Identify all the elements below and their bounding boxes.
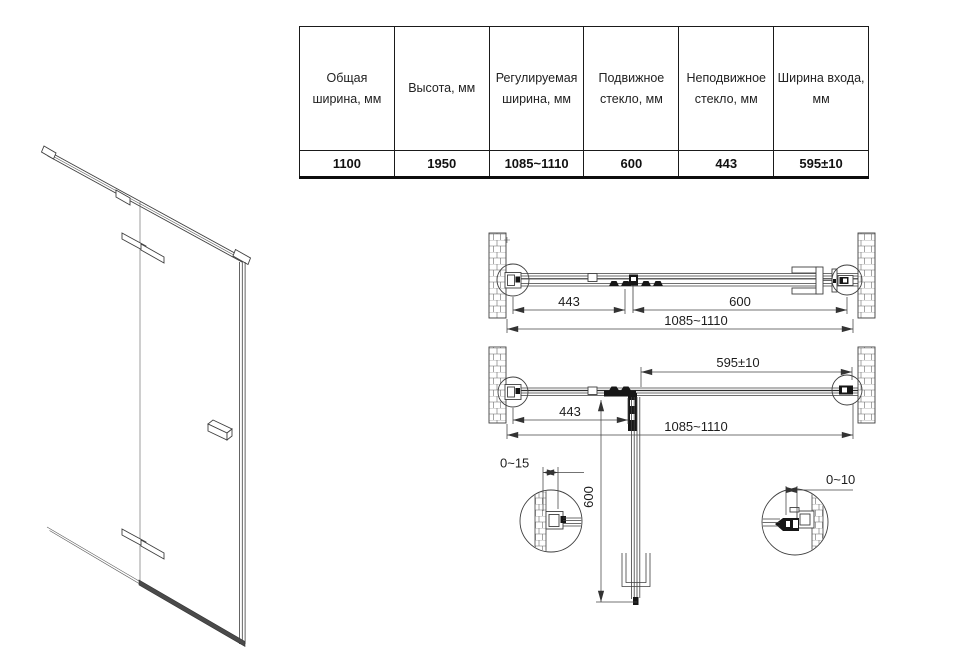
pivot-bracket (604, 387, 637, 432)
dim-label-overall-width-closed: 1085~1110 (664, 313, 728, 328)
wall-profile-left (505, 385, 521, 400)
technical-drawing-canvas: 443 600 1085~1110 (0, 0, 961, 650)
track-lines (506, 388, 858, 396)
wall-section-left (489, 347, 506, 423)
dim-label-door-length: 600 (581, 486, 596, 508)
dim-label-overall-width-open: 1085~1110 (664, 419, 728, 434)
shower-door-spec-sheet: Общая ширина, мм Высота, мм Регулируемая… (0, 0, 961, 650)
wall-profile-left (505, 273, 521, 289)
bottom-glass-clamp-b (141, 540, 164, 559)
dim-overall-width-closed: 1085~1110 (507, 313, 853, 333)
dim-label-movable-glass-closed: 600 (729, 294, 751, 309)
dim-movable-glass-closed: 600 (633, 294, 847, 314)
detail-right-wall-profile: 0~10 (762, 472, 855, 555)
right-glass-edge-lines (240, 262, 246, 644)
wall-profile-right (839, 386, 853, 395)
detail-left-wall-profile: 0~15 (500, 456, 584, 553)
dim-label-entry-width: 595±10 (716, 355, 759, 370)
track-clamp (588, 387, 597, 395)
dim-label-wall-adjust-right: 0~10 (826, 472, 855, 487)
wall-section-right (858, 347, 875, 423)
dim-label-fixed-glass-open: 443 (559, 404, 581, 419)
dim-label-fixed-glass-closed: 443 (558, 294, 580, 309)
top-bar-midline (48, 154, 242, 260)
door-glass-tip (633, 597, 639, 605)
wall-section-right (858, 233, 875, 318)
wall-profile-right (838, 276, 853, 286)
isometric-door-drawing (42, 146, 251, 647)
detail-right-content (762, 494, 823, 552)
dim-fixed-glass-open: 443 (513, 398, 628, 424)
door-u-handle (622, 553, 650, 587)
towel-bar-handle (792, 267, 837, 294)
top-glass-clamp-b (141, 244, 164, 263)
track-clamp (588, 274, 597, 282)
detail-left-content (535, 490, 583, 552)
dim-entry-width-open: 595±10 (641, 355, 852, 387)
track-lines (506, 274, 858, 287)
top-view-closed: 443 600 1085~1110 (489, 233, 875, 333)
top-view-open: 595±10 443 1085~1110 600 (489, 347, 875, 605)
top-bar-left-cap (42, 146, 57, 159)
bottom-rail (139, 580, 245, 647)
dim-label-wall-adjust-left: 0~15 (500, 456, 529, 471)
door-handle-knob (208, 420, 232, 440)
center-roller-slot (631, 277, 636, 281)
dim-fixed-glass-closed: 443 (513, 289, 625, 314)
